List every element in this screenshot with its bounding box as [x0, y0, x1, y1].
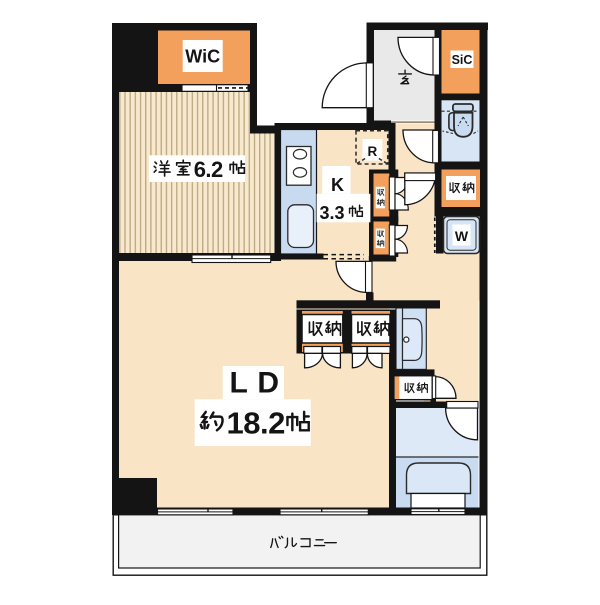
svg-text:K: K [331, 175, 344, 195]
svg-text:LD: LD [230, 367, 289, 400]
svg-text:WiC: WiC [185, 47, 220, 67]
svg-text:6.2: 6.2 [194, 157, 223, 182]
svg-text:W: W [455, 228, 469, 244]
svg-text:18.2: 18.2 [227, 406, 285, 441]
svg-text:R: R [368, 144, 378, 159]
svg-text:SiC: SiC [452, 53, 473, 67]
svg-text:3.3: 3.3 [320, 203, 345, 223]
